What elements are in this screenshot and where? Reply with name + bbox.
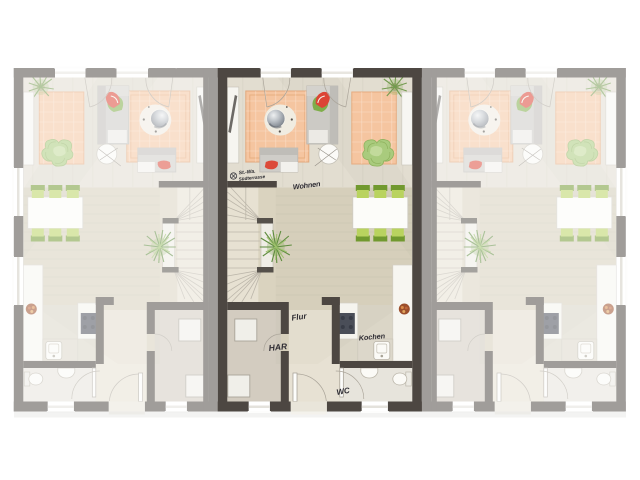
svg-text:HAR: HAR [268, 341, 288, 353]
